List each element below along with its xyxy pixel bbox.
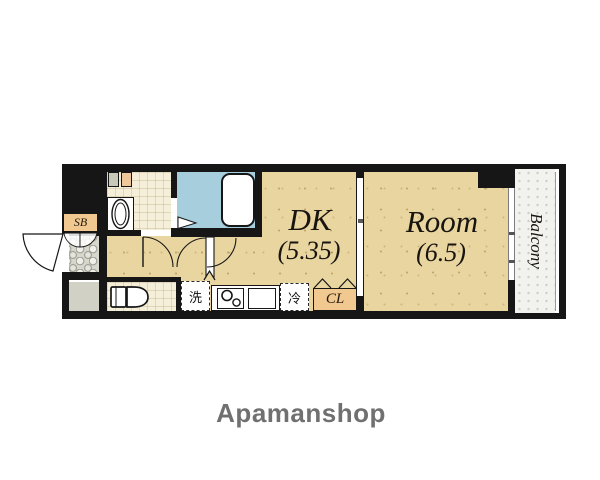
toilet-room-floor: [107, 282, 176, 311]
floor-plan-page: SB 洗 冷 CL: [0, 0, 600, 480]
closet: CL: [313, 288, 357, 311]
bathtub: [221, 173, 255, 227]
entry-door-opening: [62, 234, 69, 272]
wall-top: [62, 164, 515, 172]
wall-bottom: [62, 311, 515, 319]
shoe-box-label: SB: [74, 215, 87, 230]
wall-window-bottom-stub: [508, 280, 515, 319]
wall-window-top-stub: [508, 164, 515, 188]
room-label: Room: [406, 204, 478, 240]
storage-box-gray: [108, 172, 119, 187]
closet-label: CL: [326, 291, 344, 308]
shoe-box-cabinet: SB: [63, 213, 98, 232]
sliding-door-tick: [358, 219, 363, 223]
kitchen-sink: [248, 288, 276, 309]
sliding-door-dk-room: [356, 178, 364, 296]
wall-right: [559, 164, 566, 319]
entry-door-swing: [23, 234, 63, 271]
fridge-space: 冷: [280, 283, 309, 311]
room-corner-pillar: [478, 164, 509, 188]
wall-dk-room-bottom-stub: [356, 296, 364, 319]
window-mullion-tick-2: [509, 260, 515, 263]
wall-below-entry: [62, 272, 107, 280]
wall-washroom-bath-divider: [171, 172, 177, 198]
dk-label: DK: [288, 202, 331, 238]
storage-box-orange: [121, 172, 132, 187]
balcony-label: Balcony: [526, 213, 546, 269]
washer-space: 洗: [181, 281, 210, 311]
wall-bath-dk-divider: [255, 172, 262, 237]
room-size-label: (6.5): [416, 238, 466, 268]
balcony-rail-line: [555, 172, 556, 311]
brand-logo-text: Apamanshop: [150, 398, 452, 429]
wall-above-toilet: [107, 277, 181, 282]
vanity-counter: [107, 197, 134, 231]
stove-unit: [217, 288, 244, 309]
washer-label: 洗: [189, 287, 202, 306]
wall-dk-room-top-stub: [356, 164, 364, 178]
fridge-label: 冷: [288, 288, 301, 307]
wall-bath-bottom: [171, 228, 262, 237]
window-mullion-tick-1: [509, 232, 515, 235]
dk-size-label: (5.35): [278, 236, 341, 266]
porch-floor: [69, 282, 101, 311]
